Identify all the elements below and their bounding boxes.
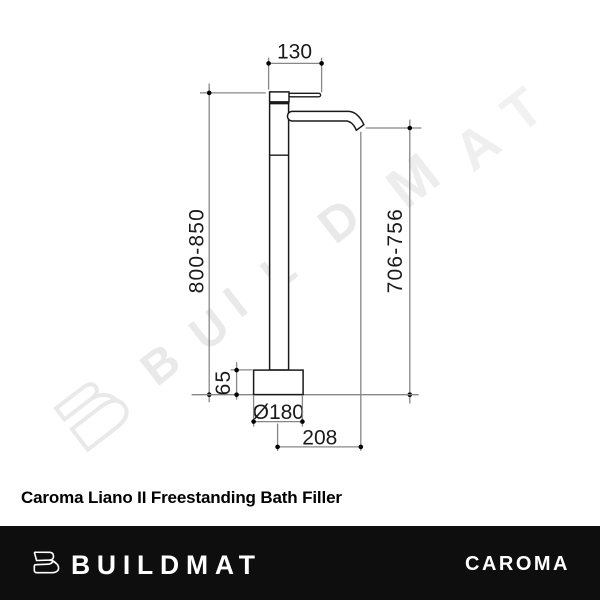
svg-text:706-756: 706-756	[384, 208, 407, 293]
svg-text:130: 130	[277, 41, 312, 64]
svg-text:Ø180: Ø180	[253, 401, 304, 424]
svg-text:65: 65	[212, 370, 235, 396]
svg-text:208: 208	[302, 427, 337, 450]
svg-text:800-850: 800-850	[185, 208, 208, 293]
